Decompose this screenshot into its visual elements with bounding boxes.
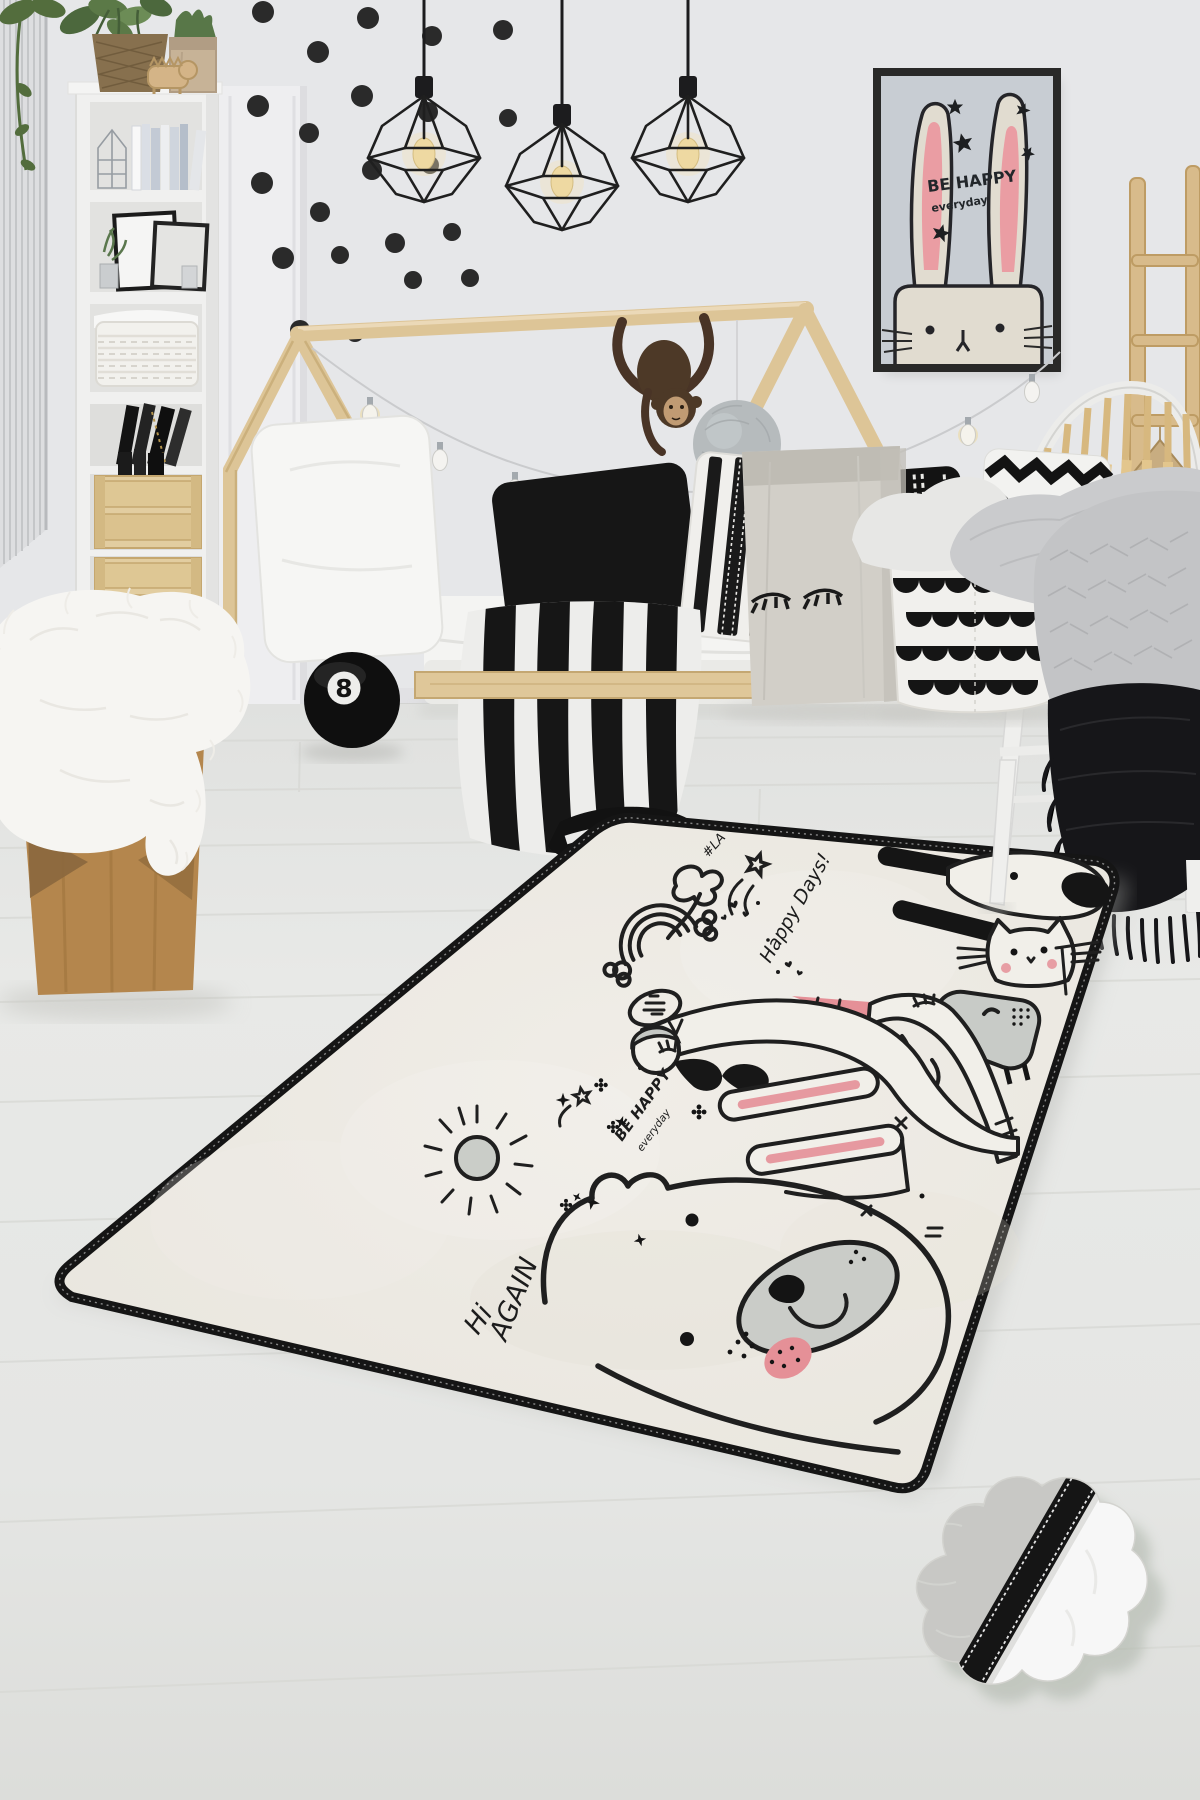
scene-svg: BE HAPPY everyday xyxy=(0,0,1200,1800)
vignette xyxy=(0,0,1200,1800)
kids-room-product-photo: BE HAPPY everyday xyxy=(0,0,1200,1800)
